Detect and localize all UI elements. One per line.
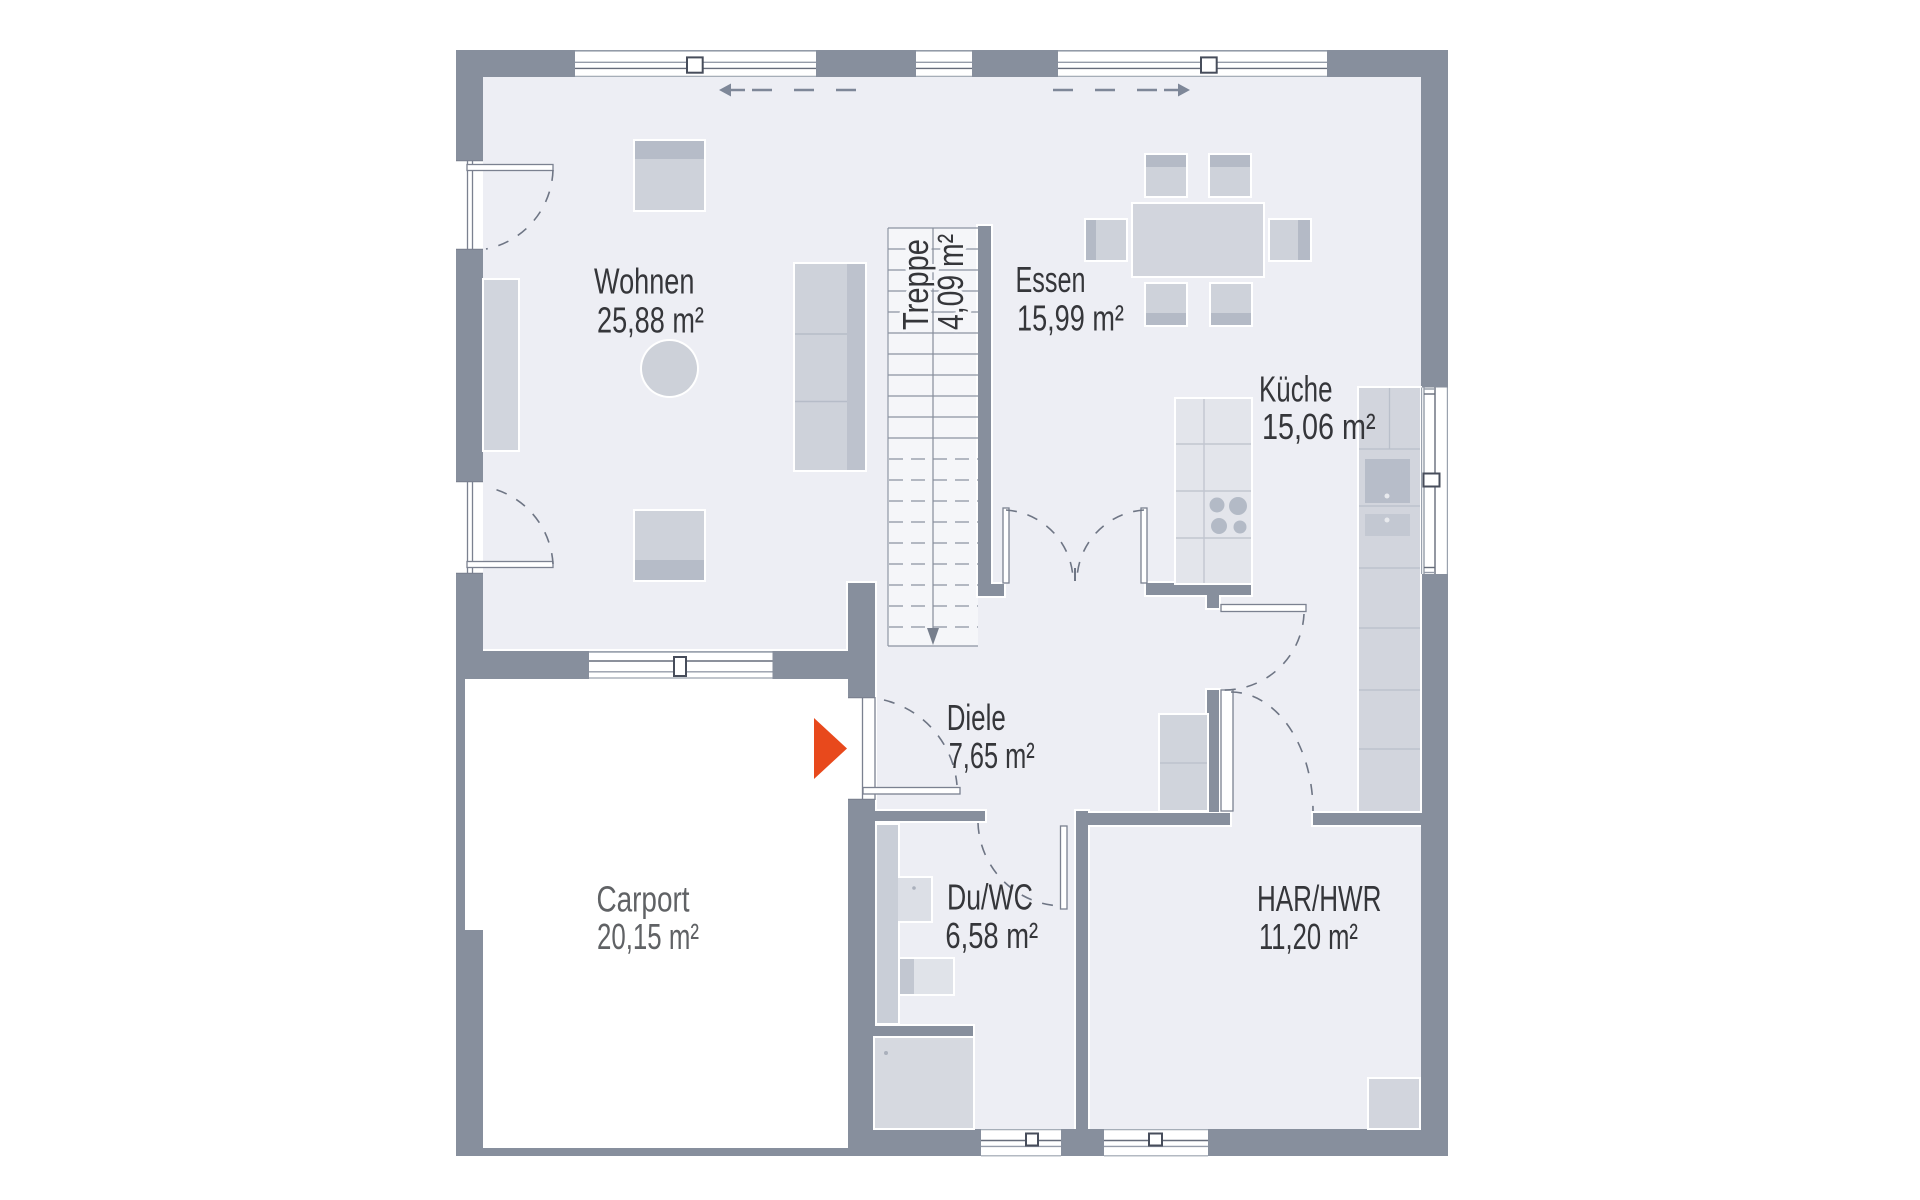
svg-text:20,15 m²: 20,15 m² [597,917,699,957]
svg-text:Diele: Diele [947,698,1006,738]
svg-text:Du/WC: Du/WC [947,877,1033,918]
svg-text:Küche: Küche [1259,369,1332,409]
svg-text:25,88 m²: 25,88 m² [597,300,704,341]
svg-text:Essen: Essen [1016,260,1086,301]
svg-text:Carport: Carport [597,879,690,919]
svg-text:15,06 m²: 15,06 m² [1262,406,1376,447]
svg-text:7,65 m²: 7,65 m² [949,736,1035,776]
svg-text:6,58 m²: 6,58 m² [945,915,1038,956]
svg-text:Wohnen: Wohnen [594,261,694,302]
svg-text:15,99 m²: 15,99 m² [1017,298,1124,339]
svg-text:4,09 m²: 4,09 m² [931,234,971,330]
svg-text:11,20 m²: 11,20 m² [1259,917,1358,957]
svg-text:HAR/HWR: HAR/HWR [1257,879,1381,919]
svg-text:Treppe: Treppe [895,239,936,330]
